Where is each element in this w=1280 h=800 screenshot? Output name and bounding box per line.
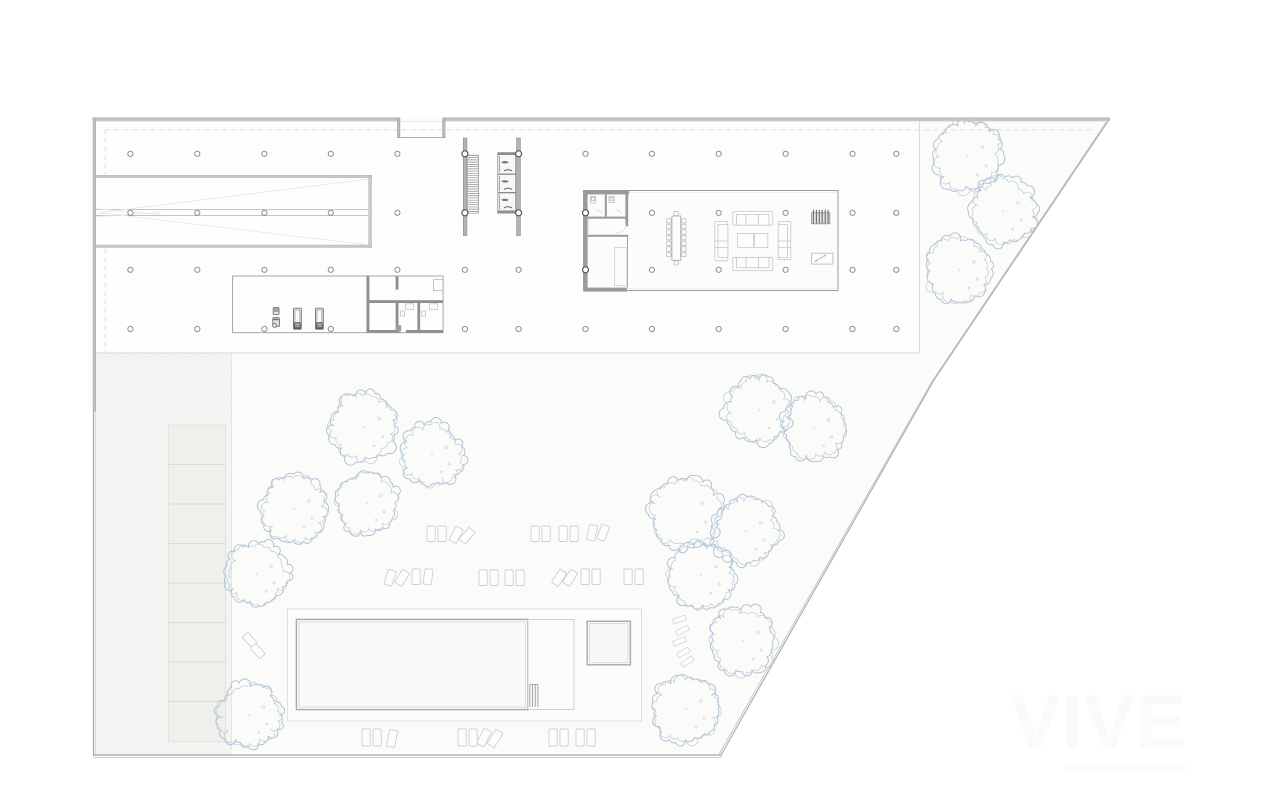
svg-text:VIVE: VIVE (1010, 680, 1187, 765)
